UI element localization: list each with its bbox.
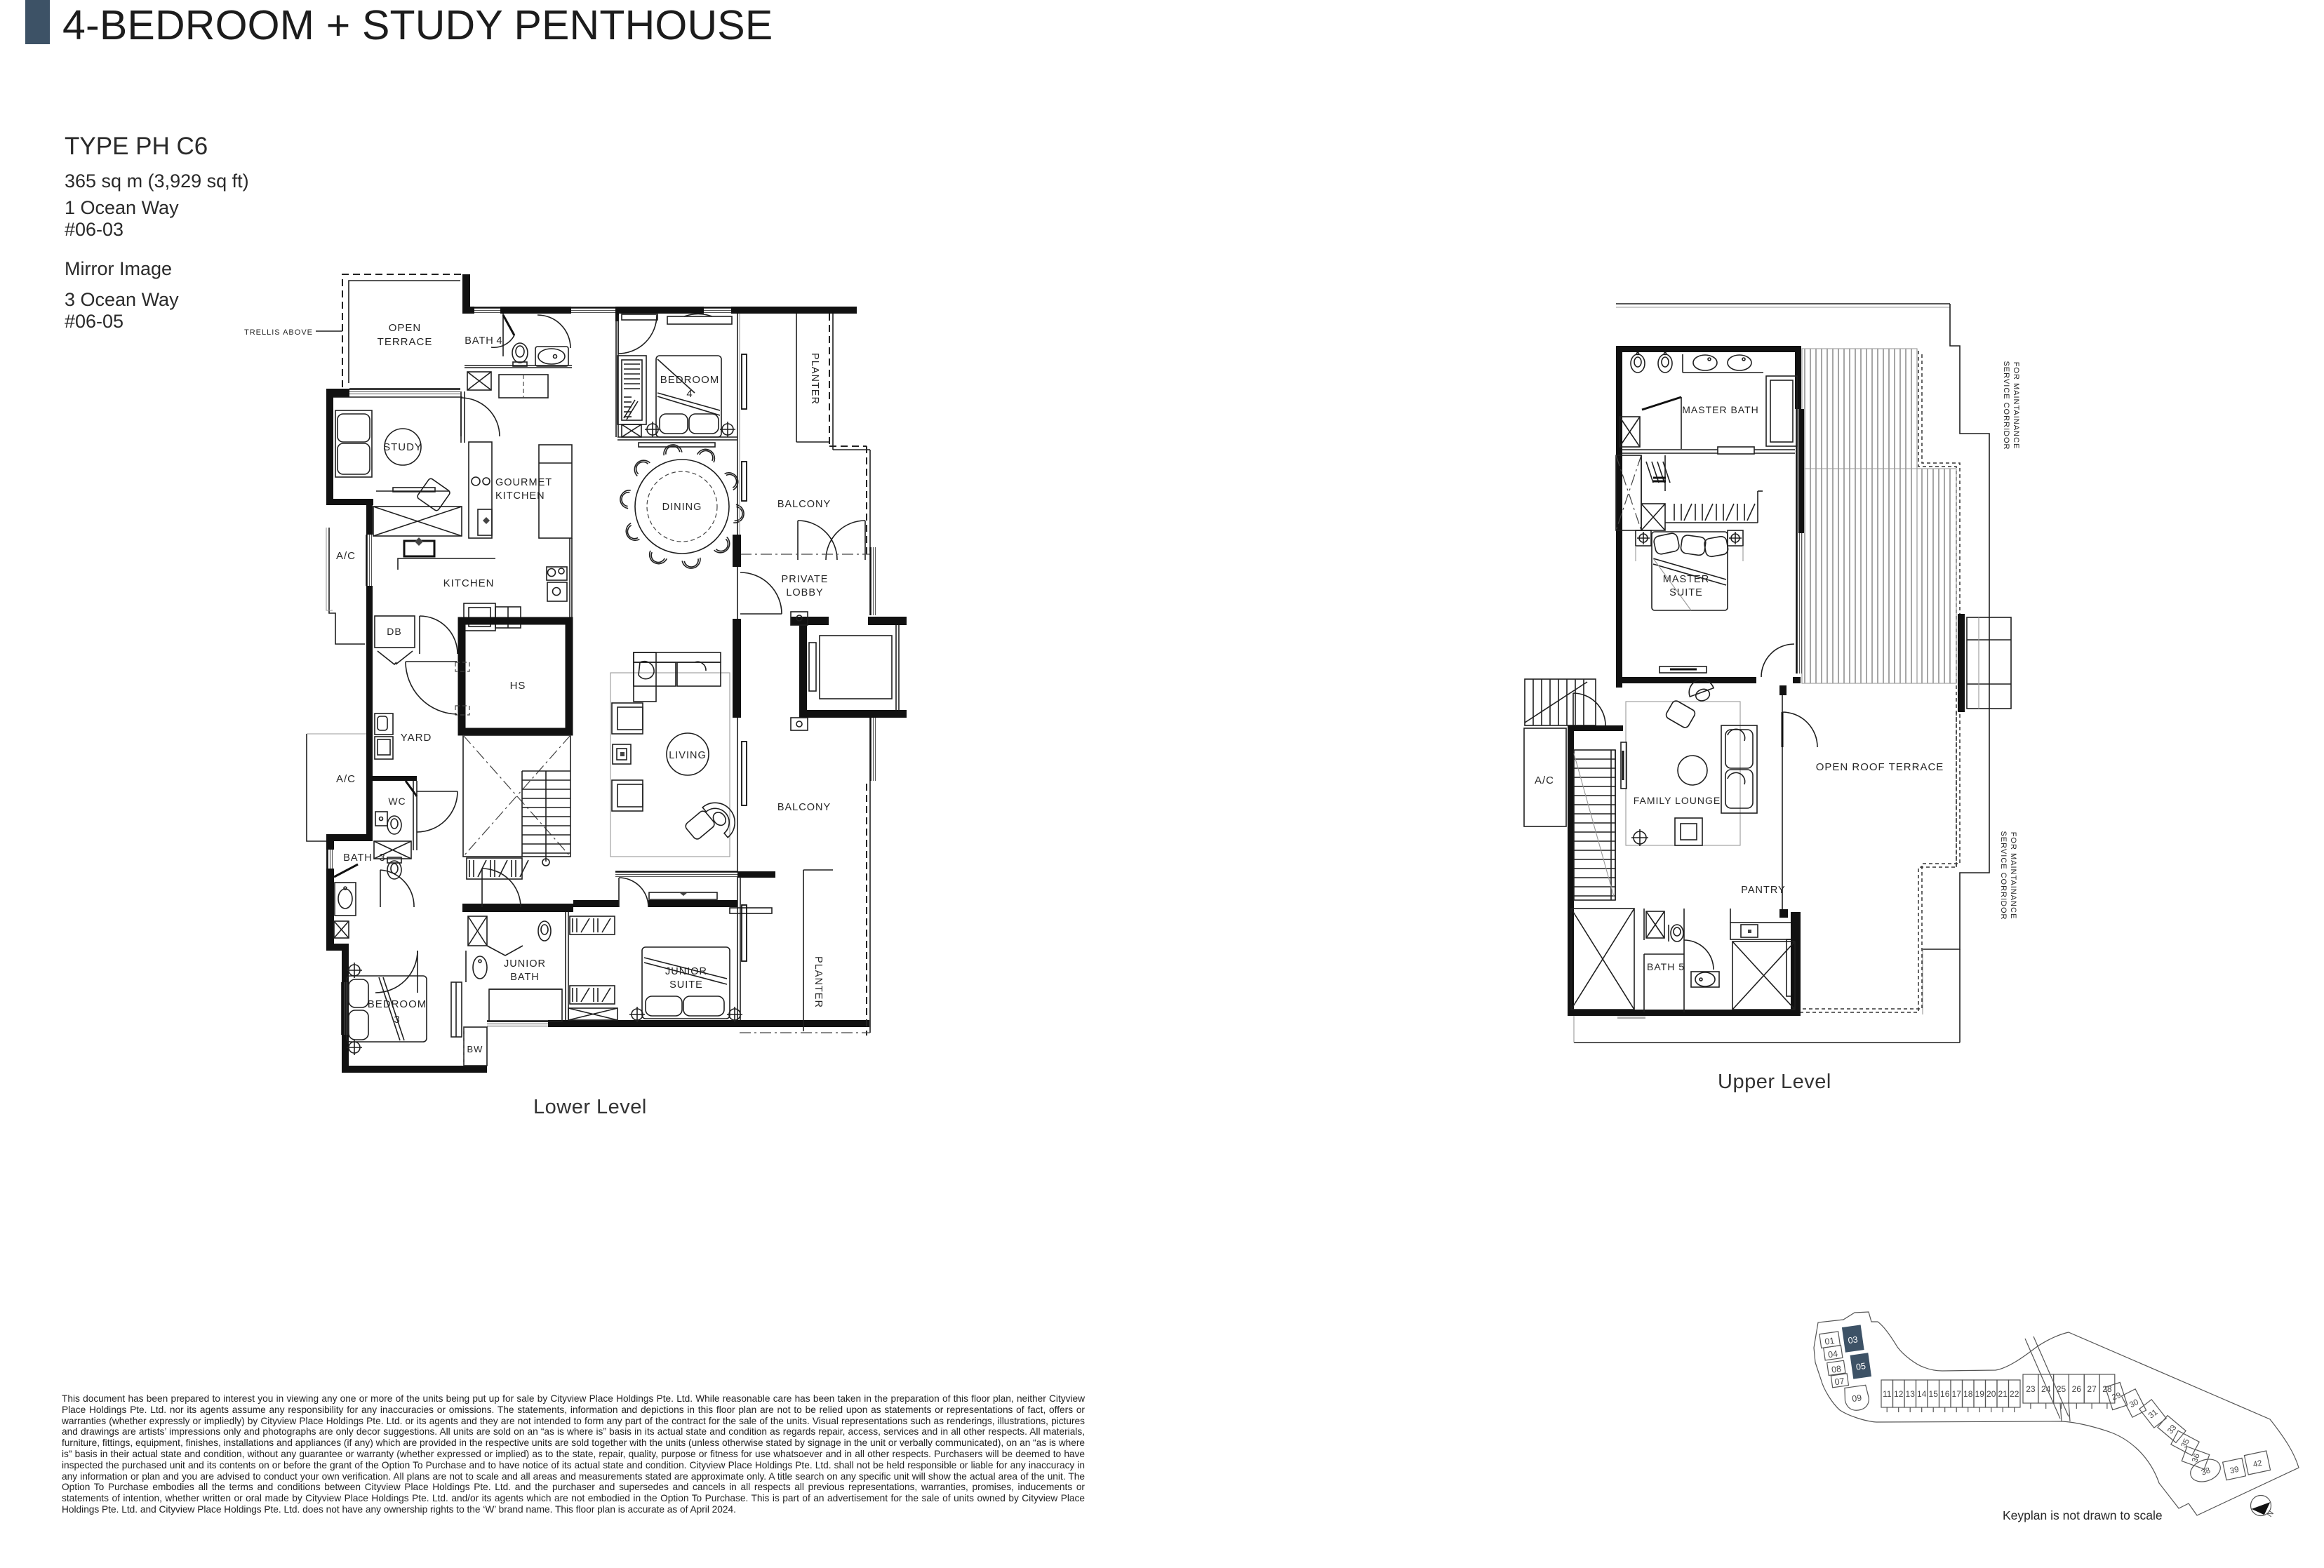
svg-text:09: 09 xyxy=(1851,1393,1862,1404)
svg-text:PLANTER: PLANTER xyxy=(813,956,824,1008)
svg-text:JUNIOR: JUNIOR xyxy=(504,958,546,970)
svg-text:22: 22 xyxy=(2010,1389,2019,1399)
svg-text:26: 26 xyxy=(2072,1384,2082,1394)
svg-text:12: 12 xyxy=(1894,1389,1904,1399)
svg-text:24: 24 xyxy=(2041,1384,2051,1394)
svg-text:WC: WC xyxy=(388,796,406,807)
svg-text:STUDY: STUDY xyxy=(383,441,422,453)
svg-text:FAMILY LOUNGE: FAMILY LOUNGE xyxy=(1634,795,1721,806)
svg-text:BALCONY: BALCONY xyxy=(777,499,831,510)
svg-text:11: 11 xyxy=(1883,1389,1892,1399)
svg-text:30: 30 xyxy=(2128,1398,2140,1410)
svg-text:15: 15 xyxy=(1929,1389,1939,1399)
svg-text:MASTER: MASTER xyxy=(1663,574,1709,585)
svg-text:OPEN: OPEN xyxy=(389,322,422,334)
svg-text:HS: HS xyxy=(510,680,526,692)
svg-text:31: 31 xyxy=(2147,1408,2159,1420)
svg-text:42: 42 xyxy=(2252,1459,2263,1469)
svg-text:BATH: BATH xyxy=(343,852,373,864)
svg-text:BATH: BATH xyxy=(465,335,494,347)
svg-text:03: 03 xyxy=(1848,1334,1859,1346)
svg-text:BATH 5: BATH 5 xyxy=(1647,961,1685,972)
svg-text:KITCHEN: KITCHEN xyxy=(495,490,545,502)
svg-text:GOURMET: GOURMET xyxy=(495,477,552,488)
svg-text:SERVICE CORRIDOR: SERVICE CORRIDOR xyxy=(2002,361,2010,450)
svg-text:SUITE: SUITE xyxy=(1669,587,1703,598)
svg-text:KITCHEN: KITCHEN xyxy=(443,577,495,589)
svg-text:17: 17 xyxy=(1952,1389,1962,1399)
svg-text:23: 23 xyxy=(2026,1384,2036,1394)
svg-text:BATH: BATH xyxy=(510,972,540,983)
svg-text:DINING: DINING xyxy=(662,502,702,513)
svg-text:39: 39 xyxy=(2229,1466,2240,1475)
svg-text:TRELLIS ABOVE: TRELLIS ABOVE xyxy=(244,328,313,337)
svg-text:21: 21 xyxy=(1998,1389,2008,1399)
svg-text:13: 13 xyxy=(1906,1389,1916,1399)
svg-text:BALCONY: BALCONY xyxy=(777,802,831,813)
svg-text:A/C: A/C xyxy=(336,550,356,562)
svg-text:N: N xyxy=(2266,1509,2276,1518)
svg-text:14: 14 xyxy=(1917,1389,1927,1399)
svg-text:29: 29 xyxy=(2111,1391,2122,1402)
svg-text:25: 25 xyxy=(2057,1384,2066,1394)
svg-text:4: 4 xyxy=(496,335,502,347)
svg-text:04: 04 xyxy=(1827,1348,1838,1360)
svg-text:BEDROOM: BEDROOM xyxy=(660,374,720,386)
svg-text:A/C: A/C xyxy=(1535,775,1554,786)
svg-text:05: 05 xyxy=(1855,1361,1866,1372)
svg-text:PLANTER: PLANTER xyxy=(809,353,820,405)
svg-text:27: 27 xyxy=(2087,1384,2097,1394)
svg-text:OPEN ROOF TERRACE: OPEN ROOF TERRACE xyxy=(1816,761,1944,773)
svg-text:16: 16 xyxy=(1940,1389,1950,1399)
svg-text:07: 07 xyxy=(1834,1376,1845,1387)
svg-text:3: 3 xyxy=(379,852,385,864)
svg-text:YARD: YARD xyxy=(401,732,432,744)
svg-text:01: 01 xyxy=(1824,1336,1836,1347)
svg-text:SERVICE CORRIDOR: SERVICE CORRIDOR xyxy=(1999,831,2008,920)
svg-text:19: 19 xyxy=(1975,1389,1985,1399)
svg-text:PANTRY: PANTRY xyxy=(1741,885,1785,896)
svg-text:FOR MAINTAINANCE: FOR MAINTAINANCE xyxy=(2009,832,2017,920)
svg-text:LOBBY: LOBBY xyxy=(786,587,823,598)
svg-text:LIVING: LIVING xyxy=(669,750,707,761)
svg-text:08: 08 xyxy=(1831,1364,1842,1375)
svg-text:BEDROOM: BEDROOM xyxy=(368,998,427,1010)
svg-text:A/C: A/C xyxy=(336,773,356,785)
svg-text:Keyplan is not drawn to scale: Keyplan is not drawn to scale xyxy=(2003,1508,2163,1522)
svg-text:18: 18 xyxy=(1963,1389,1973,1399)
svg-text:PRIVATE: PRIVATE xyxy=(782,574,829,585)
svg-text:DB: DB xyxy=(387,626,401,637)
svg-text:SUITE: SUITE xyxy=(669,979,703,991)
svg-text:20: 20 xyxy=(1986,1389,1996,1399)
svg-text:BW: BW xyxy=(467,1044,483,1054)
svg-text:TERRACE: TERRACE xyxy=(378,336,433,348)
svg-text:FOR MAINTAINANCE: FOR MAINTAINANCE xyxy=(2012,362,2020,450)
svg-text:MASTER BATH: MASTER BATH xyxy=(1682,404,1759,415)
